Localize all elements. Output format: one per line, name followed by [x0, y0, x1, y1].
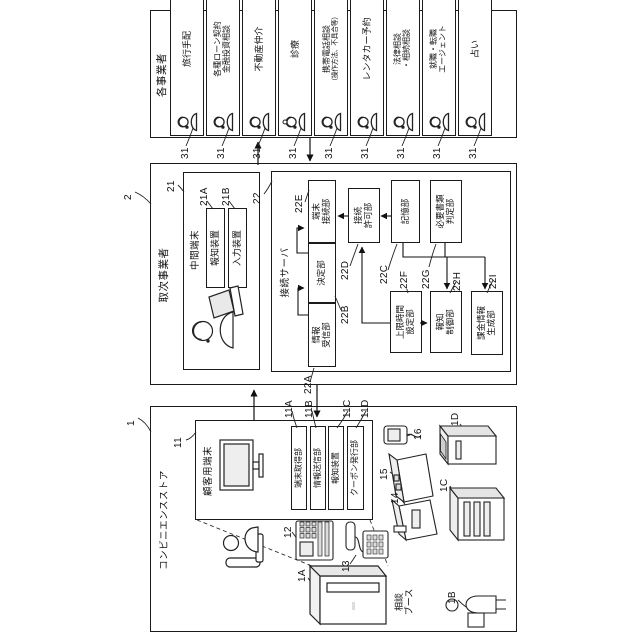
ref-11c: 11C — [342, 399, 353, 418]
customer-terminal-title: 顧客用端末 — [200, 422, 214, 520]
operator-label: 金融投資相談 — [223, 25, 232, 73]
ref-11a: 11A — [284, 400, 295, 418]
operator-row-fortune: 占い — [458, 0, 492, 136]
ref-2: 2 — [123, 194, 134, 200]
operator-row-mobile-support: 携帯電話相談（操作方法、不具合等） — [314, 0, 348, 136]
ref-22e: 22E — [294, 194, 305, 213]
booth-caption-line1: 相談 — [394, 578, 404, 626]
ref-16: 16 — [413, 428, 424, 440]
ref-22d: 22D — [340, 261, 351, 280]
unit-terminal-acquisition: 端末取得部 — [291, 426, 307, 510]
unit-billing-info-generator: 課金情報 生成部 — [471, 291, 503, 355]
operator-label: 旅行手配 — [182, 31, 192, 67]
leader-2 — [135, 192, 151, 204]
ref-1d: 1D — [450, 413, 461, 426]
operator-label: 携帯電話相談 — [323, 25, 332, 73]
operator-label: 不動産仲介 — [254, 27, 264, 72]
unit-input-device-21b: 入力装置 — [228, 208, 247, 288]
unit-connection-permission: 接続 許可部 — [348, 188, 380, 243]
ref-1a: 1A — [297, 569, 308, 582]
unit-label: 制御部 — [446, 309, 456, 335]
diagram-rotated-canvas: コンビニエンスストア 取次事業者 各事業者 顧客用端末 端末取得部 情報送信部 … — [0, 0, 640, 640]
ref-22c: 22C — [379, 265, 390, 284]
ref-31-medical: 31 — [288, 147, 299, 159]
booth-caption-line2: ブース — [404, 578, 414, 626]
operator-row-realestate: 不動産仲介 — [242, 0, 276, 136]
ref-31-rentacar: 31 — [360, 147, 371, 159]
unit-label: 入力装置 — [232, 230, 242, 266]
ref-11b: 11B — [304, 400, 315, 418]
unit-notify-device-21a: 報知装置 — [206, 208, 225, 288]
ref-12: 12 — [283, 526, 294, 538]
operator-label: ・相続相談 — [403, 29, 412, 69]
unit-label: 設定部 — [406, 309, 416, 335]
unit-required-docs-judge: 必要書類 判定部 — [430, 180, 462, 243]
unit-time-limit-setter: 上限時間 設定部 — [390, 291, 422, 353]
store-title: コンビニエンスストア — [156, 408, 170, 632]
ref-1: 1 — [126, 420, 137, 426]
ref-21b: 21B — [221, 187, 232, 206]
ref-31-legal: 31 — [396, 147, 407, 159]
unit-terminal-connection: 端末 接続部 — [308, 180, 336, 243]
ref-11: 11 — [173, 437, 184, 448]
ref-15: 15 — [379, 468, 390, 480]
unit-storage: 記憶部 — [391, 180, 420, 243]
ref-31-mobile: 31 — [324, 147, 335, 159]
unit-label: 許可部 — [364, 203, 374, 229]
unit-notification-control: 報知 制御部 — [430, 291, 462, 353]
ref-1b: 1B — [447, 591, 458, 604]
operator-row-job-agent: 就職・転職エージェント — [422, 0, 456, 136]
unit-label: 情報送信部 — [314, 448, 323, 488]
ref-31-travel: 31 — [180, 147, 191, 159]
unit-label: 記憶部 — [401, 199, 411, 225]
unit-coupon-issuer: クーポン発行部 — [347, 426, 364, 510]
ref-31-job: 31 — [432, 147, 443, 159]
operator-label: 占い — [470, 40, 480, 58]
operators-title: 各事業者 — [154, 12, 169, 138]
intermediate-terminal-title: 中間端末 — [187, 200, 201, 300]
booth-caption: 相談 ブース — [394, 578, 415, 626]
unit-label: 報知装置 — [332, 452, 341, 484]
patent-figure: コンビニエンスストア 取次事業者 各事業者 顧客用端末 端末取得部 情報送信部 … — [0, 0, 640, 640]
ref-13: 13 — [341, 560, 352, 572]
ref-22: 22 — [252, 192, 263, 204]
unit-label: 生成部 — [487, 310, 497, 336]
ref-22b: 22B — [340, 305, 351, 324]
operator-row-medical: 診療 — [278, 0, 312, 136]
ref-14: 14 — [390, 492, 401, 504]
ref-22f: 22F — [399, 271, 410, 289]
ref-1c: 1C — [439, 479, 450, 492]
agency-title: 取次事業者 — [156, 165, 171, 385]
connection-server-title: 接続サーバ — [277, 173, 291, 372]
operator-label: 診療 — [290, 40, 300, 58]
ref-31-fortune: 31 — [468, 147, 479, 159]
unit-label: 報知装置 — [210, 230, 220, 266]
ref-22i: 22I — [488, 274, 499, 289]
ref-31-loan: 31 — [216, 147, 227, 159]
ref-11d: 11D — [360, 399, 371, 418]
unit-label: 判定部 — [446, 199, 456, 225]
ref-31-realestate: 31 — [252, 147, 263, 159]
ref-21a: 21A — [199, 187, 210, 206]
unit-decision: 決定部 — [308, 243, 336, 303]
ref-22g: 22G — [421, 269, 432, 289]
unit-label: 受信部 — [322, 322, 332, 348]
operator-row-loan: 各種ローン契約金融投資相談 — [206, 0, 240, 136]
unit-label: 決定部 — [317, 260, 327, 286]
unit-label: 端末取得部 — [295, 448, 304, 488]
operator-label: レンタカー予約 — [362, 18, 372, 81]
ref-21: 21 — [166, 180, 177, 192]
operator-row-travel: 旅行手配 — [170, 0, 204, 136]
unit-label: 接続部 — [322, 199, 332, 225]
operator-label-small: （操作方法、不具合等） — [332, 13, 340, 84]
operator-row-rentacar: レンタカー予約 — [350, 0, 384, 136]
unit-notification-device: 報知装置 — [328, 426, 344, 510]
unit-info-receiver: 情報 受信部 — [308, 303, 336, 367]
ref-22a: 22A — [303, 375, 314, 394]
unit-label: クーポン発行部 — [351, 440, 360, 496]
unit-info-transmitter: 情報送信部 — [310, 426, 326, 510]
ref-22h: 22H — [452, 272, 463, 291]
operator-label: エージェント — [439, 25, 448, 73]
operator-row-legal: 法律相談・相続相談 — [386, 0, 420, 136]
